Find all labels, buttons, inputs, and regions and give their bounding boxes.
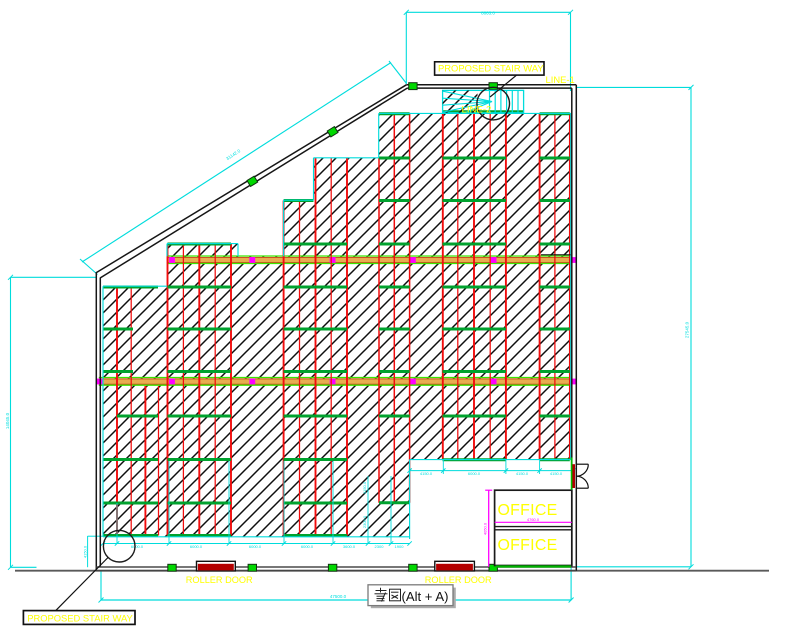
svg-text:14045.0: 14045.0	[5, 412, 10, 429]
svg-text:4150.0: 4150.0	[362, 481, 367, 494]
svg-text:6000.0: 6000.0	[301, 544, 314, 549]
svg-text:47500.0: 47500.0	[330, 594, 347, 599]
svg-text:2300.0: 2300.0	[362, 515, 367, 528]
svg-text:4150.0: 4150.0	[516, 471, 529, 476]
svg-text:PROPOSED STAIR WAY: PROPOSED STAIR WAY	[27, 612, 133, 623]
svg-text:ROLLER DOOR: ROLLER DOOR	[186, 575, 253, 585]
svg-text:4760.0: 4760.0	[527, 517, 540, 522]
svg-text:4050.0: 4050.0	[482, 522, 487, 535]
svg-text:PROPOSED STAIR WAY: PROPOSED STAIR WAY	[438, 63, 544, 74]
svg-text:2300: 2300	[375, 544, 385, 549]
svg-text:6000.0: 6000.0	[468, 471, 481, 476]
svg-text:3600.0: 3600.0	[343, 544, 356, 549]
svg-text:27545.0: 27545.0	[685, 321, 690, 338]
svg-text:6000.0: 6000.0	[249, 544, 262, 549]
svg-text:OFFICE: OFFICE	[498, 537, 558, 554]
svg-text:6000.0: 6000.0	[131, 544, 144, 549]
svg-text:LINE-1: LINE-1	[546, 74, 575, 85]
svg-text:4150.0: 4150.0	[420, 471, 433, 476]
svg-text:ROLLER DOOR: ROLLER DOOR	[425, 575, 492, 585]
svg-text:1900: 1900	[395, 544, 405, 549]
svg-text:LINE-2: LINE-2	[462, 105, 492, 116]
svg-text:4150.0: 4150.0	[550, 471, 563, 476]
svg-text:(Alt + A): (Alt + A)	[402, 589, 449, 604]
svg-text:6000.0: 6000.0	[190, 544, 203, 549]
svg-text:8863.0: 8863.0	[481, 10, 495, 15]
svg-text:4150.0: 4150.0	[83, 545, 88, 558]
